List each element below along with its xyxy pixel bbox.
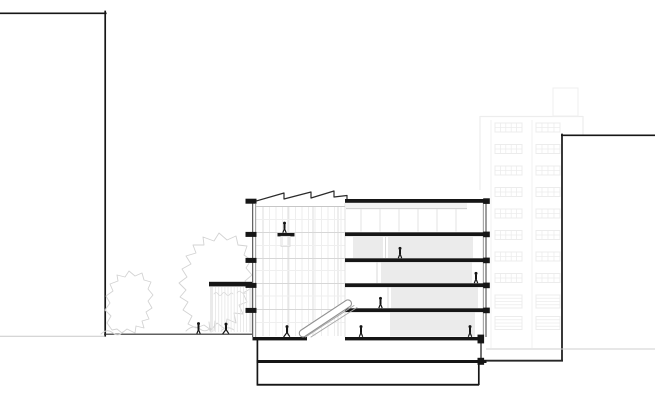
level-2-figure-head [399, 247, 402, 250]
section-drawing [0, 0, 655, 400]
pedestrian-b-head [225, 323, 228, 326]
floor-slab [345, 308, 486, 312]
slab-end-left [246, 308, 257, 313]
slab-end-left [246, 258, 257, 263]
pedestrian-b-leg [223, 330, 226, 335]
atrium-ground-walker-head [286, 325, 289, 328]
slab-end-left [246, 199, 257, 204]
floor-slab [345, 232, 486, 236]
pedestrian-a-head [197, 322, 200, 325]
slab-end-right [483, 283, 490, 289]
slab-end-left [246, 232, 257, 237]
room-fill-l2a [353, 237, 383, 258]
floor-slab [345, 283, 486, 287]
floor-slab [345, 199, 486, 203]
mezzanine-figure-head [379, 297, 382, 300]
clerestory-band [346, 203, 467, 209]
ground-figure-a-head [360, 325, 363, 328]
slab-end-right [483, 198, 490, 204]
architectural-section-canvas [0, 0, 655, 400]
tree-small-canopy [105, 271, 153, 333]
pedestrian-a-leg [199, 330, 201, 334]
floor-slab [345, 258, 486, 262]
basement-floor-slab [257, 384, 480, 386]
slab-end-right [483, 232, 490, 238]
atrium-balcony-slab [278, 233, 295, 236]
room-fill-l3 [381, 263, 472, 284]
level-1-figure-head [475, 272, 478, 275]
basement-mid-slab [257, 360, 487, 363]
right-building-mask [562, 135, 655, 361]
slab-end-right [483, 308, 490, 314]
room-fill-l4 [391, 288, 478, 309]
slab-end-left [246, 283, 257, 288]
ground-slab-right [345, 337, 483, 340]
room-fill-l5 [390, 313, 475, 337]
bg-building-roof-structure [553, 88, 578, 116]
slab-end-right [483, 258, 490, 264]
atrium-balcony-figure-head [283, 222, 286, 225]
ground-figure-b-head [469, 325, 472, 328]
ground-slab-left [253, 337, 308, 340]
basement-underlay [255, 341, 488, 386]
